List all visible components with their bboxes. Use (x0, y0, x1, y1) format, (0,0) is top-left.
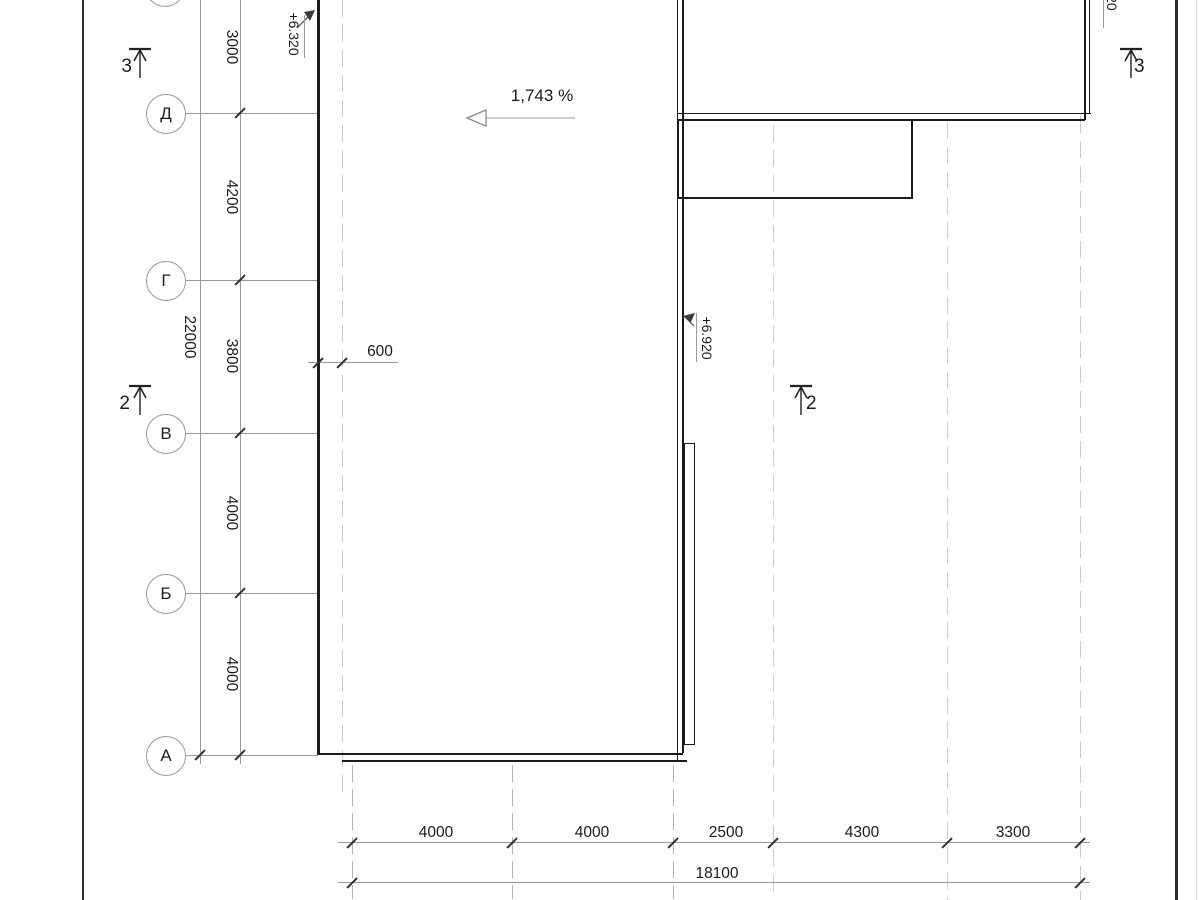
dim-bottom-2500: 2500 (709, 824, 743, 842)
dim-row-3000: 3000 (222, 30, 240, 64)
roof-edge-bottom-outer (342, 760, 687, 762)
dim-overhang-600: 600 (367, 343, 393, 361)
dim-row-3800: 3800 (222, 339, 240, 373)
canopy-outline (677, 119, 913, 199)
sheet-border-left (82, 0, 84, 900)
dim-row-4000a: 4000 (222, 496, 240, 530)
dim-line-overhang (308, 362, 398, 363)
section-number-3-right: 3 (1134, 56, 1145, 78)
grid-label-v: В (160, 424, 171, 444)
grid-bubble-b: Б (146, 574, 186, 614)
section-number-2-center: 2 (806, 393, 817, 415)
elevation-left-label: +6.320 (286, 12, 302, 55)
elevation-leader-left (304, 15, 305, 58)
axis-leader-g (184, 280, 318, 281)
axis-leader-b (184, 593, 318, 594)
grid-bubble-d: Д (146, 94, 186, 134)
roof-edge-right-outer (1089, 0, 1090, 114)
dim-row-4200: 4200 (222, 180, 240, 214)
roof-edge-left (317, 0, 320, 754)
section-number-3-left: 3 (110, 56, 132, 78)
axis-leader-v (184, 433, 318, 434)
parapet-step-outline (684, 443, 695, 745)
dim-bottom-4000a: 4000 (419, 824, 453, 842)
axis-leader-d (184, 113, 318, 114)
sheet-border-right (1175, 0, 1178, 900)
roof-plan-drawing: Д Г В Б А 3000 4200 3800 4000 4000 22000… (0, 0, 1200, 900)
slope-label: 1,743 % (511, 86, 573, 106)
extension-line-1 (352, 765, 353, 899)
roof-edge-right-inner (1084, 0, 1086, 120)
roof-edge-middle-outer (677, 0, 678, 761)
grid-bubble-g: Г (146, 261, 186, 301)
slope-arrow-icon (465, 104, 580, 132)
dim-line-total-vertical (200, 0, 201, 764)
elevation-leader-right (696, 313, 697, 362)
dim-bottom-3300: 3300 (996, 824, 1030, 842)
section-number-2-left: 2 (108, 393, 130, 415)
extension-line-3 (673, 765, 674, 899)
dim-line-rows-vertical (240, 0, 241, 764)
axis-leader-a (184, 755, 318, 756)
dim-bottom-4000b: 4000 (575, 824, 609, 842)
grid-bubble-top-clipped (145, 0, 185, 7)
dim-row-4000b: 4000 (222, 657, 240, 691)
dim-bottom-4300: 4300 (845, 824, 879, 842)
column-axis-3 (947, 122, 948, 900)
grid-label-g: Г (161, 271, 170, 291)
grid-label-b: Б (160, 584, 171, 604)
grid-label-a: А (160, 746, 171, 766)
column-axis-2 (773, 125, 774, 900)
dim-bottom-total-18100: 18100 (695, 865, 738, 883)
dim-line-bottom-segments (338, 842, 1090, 843)
extension-line-2 (512, 765, 513, 899)
grid-label-d: Д (160, 104, 172, 124)
grid-bubble-a: А (146, 736, 186, 776)
column-axis-4 (1080, 116, 1081, 900)
grid-bubble-v: В (146, 414, 186, 454)
sheet-edge-light (1196, 0, 1197, 900)
column-axis-1 (342, 0, 343, 792)
roof-edge-top-outer (677, 113, 1091, 114)
dim-row-total-22000: 22000 (180, 315, 198, 358)
elevation-right-label: +6.920 (699, 316, 715, 359)
elevation-top-fragment: 020 (1104, 0, 1120, 11)
roof-edge-bottom-inner (317, 753, 683, 755)
